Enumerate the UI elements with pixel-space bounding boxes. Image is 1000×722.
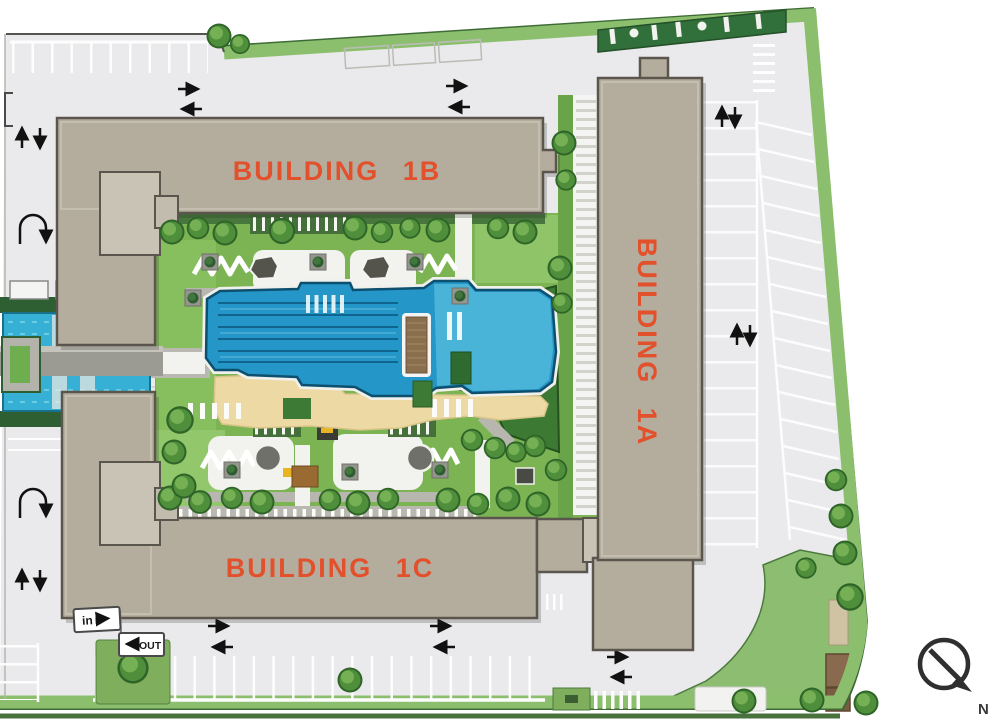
sign-in: in <box>73 607 120 632</box>
compass: N <box>920 640 989 718</box>
building-1b-annex <box>100 172 160 255</box>
sign-out-label: OUT <box>139 640 162 652</box>
pool-area <box>188 281 556 430</box>
sign-in-label: in <box>82 613 93 628</box>
site-plan: BUILDING 1B BUILDING 1C BUILDING 1A <box>0 0 1000 722</box>
north-label: N <box>978 701 989 718</box>
pool-deck-island <box>402 313 431 377</box>
building-1c-label: BUILDING 1C <box>226 553 435 583</box>
lawn-rug <box>413 381 432 407</box>
entry-kiosk <box>10 281 48 299</box>
building-1b-label: BUILDING 1B <box>233 156 442 186</box>
lawn-rug <box>283 398 311 419</box>
building-1a[interactable]: BUILDING 1A <box>583 58 702 650</box>
median-mark <box>565 695 578 703</box>
sign-out: OUT <box>119 633 164 656</box>
walkway-1a-west <box>573 95 600 515</box>
in-pool-lounger <box>447 312 452 340</box>
building-1a-label: BUILDING 1A <box>632 238 662 447</box>
building-1a-wing <box>593 558 693 650</box>
in-arrow-icon <box>96 618 108 619</box>
building-1c-annex <box>100 462 160 545</box>
in-pool-lounger <box>457 312 462 340</box>
site-plan-canvas: BUILDING 1B BUILDING 1C BUILDING 1A <box>0 0 1000 722</box>
building-1c-wing <box>537 519 587 572</box>
pool-green-pad <box>451 352 471 384</box>
